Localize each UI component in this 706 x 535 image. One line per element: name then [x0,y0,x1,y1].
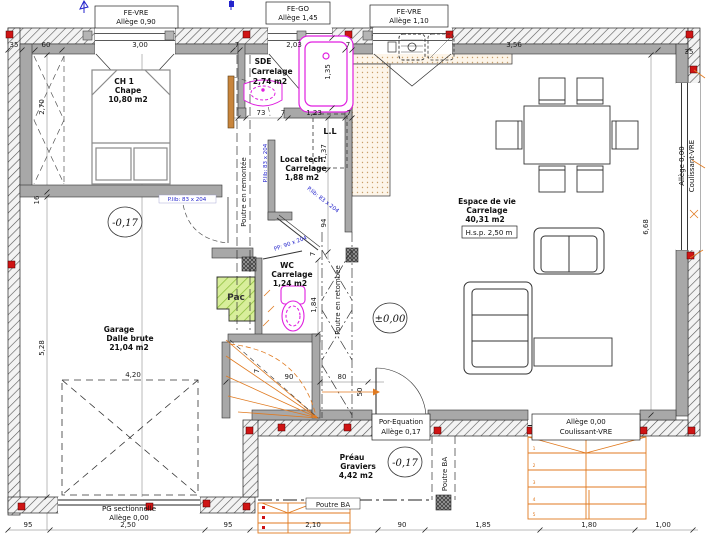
dim-wall16: 16 [33,195,41,204]
level-preau: -0,17 [392,458,418,469]
step-numbers: 1 2 3 4 5 [533,446,536,518]
label-coulissant-bottom-sill: Allège 0,00 [566,418,606,426]
level-living: ±0,00 [375,314,406,325]
dining-set [496,78,638,192]
dim-hall: 94 [320,218,328,227]
label-fego-name: FE-GO [287,5,310,13]
dim-sde-3: 7 [347,109,351,117]
dim-top-7: 35 [685,48,694,56]
beam-remontee-label: Poutre en remontée [240,157,248,227]
closet [34,56,64,184]
toilet [281,286,305,331]
dim-s7: 7 [253,369,261,373]
label-fevre2-sill: Allège 1,10 [389,17,429,25]
dim-bottom-7: 1,00 [655,521,671,529]
exterior-steps-right [528,437,646,519]
dim-garage-door: 4,20 [125,371,141,379]
step-2: 2 [533,463,536,469]
label-coulissant-right-name: Coulissant-VRE [688,140,696,192]
door-note-3: P.lib: 83 x 204 [306,186,341,215]
room-garage-floor: Dalle brute [106,334,153,343]
dim-top-4: 2,03 [286,41,302,49]
dim-corridor: 80 [338,373,347,381]
level-garage: -0,17 [112,218,138,229]
room-localtech-name: Local tech. [280,155,326,164]
label-pg-name: PG sectionnelle [102,505,156,513]
dim-top-3: 7 [235,41,239,49]
dim-bottom-4: 90 [398,521,407,529]
label-fevre2-name: FE-VRE [397,8,422,16]
dim-top-6: 3,56 [506,41,522,49]
kitchen-worktop [352,44,512,196]
dim-garage-h: 5,28 [38,340,46,356]
room-ch1-floor: Chape [115,86,141,95]
room-garage-area: 21,04 m2 [109,343,148,352]
label-pg-sill: Allège 0,00 [109,514,149,522]
door-note-1: P.lib: 83 x 204 [168,197,207,203]
room-living-name: Espace de vie [458,197,516,206]
dim-stair-d: 50 [356,388,364,397]
dim-sde-0: 73 [257,109,266,117]
room-sde-area: 2,74 m2 [253,77,287,86]
dim-sde-1: 7 [281,109,285,117]
room-living-hsp: H.s.p. 2,50 m [466,229,513,237]
window-labels: FE-VRE Allège 0,90 FE-GO Allège 1,45 FE-… [95,2,696,522]
label-porequation-name: Por-Equation [379,418,423,426]
dim-bottom-5: 1,85 [475,521,491,529]
room-preau-area: 4,42 m2 [339,471,373,480]
beam-ba-vertical-label: Poutre BA [441,457,449,491]
room-ch1-name: CH 1 [114,77,134,86]
heat-pump-label: Pac [227,293,245,303]
label-fevre1-sill: Allège 0,90 [116,18,156,26]
step-3: 3 [533,480,536,486]
label-coulissant-right-sill: Allège 0,00 [678,146,686,186]
dim-bottom-3: 2,10 [305,521,321,529]
dim-sde-2: 1,23 [306,109,322,117]
dim-bottom-1: 2,50 [120,521,136,529]
floor-plan-svg: 35 60 3,00 7 2,03 7 3,56 35 73 7 1,23 7 … [0,0,706,535]
dim-closet: 2,70 [38,99,46,115]
garage-reservation [62,380,198,495]
dim-bottom-6: 1,80 [581,521,597,529]
room-living-floor: Carrelage [466,206,507,215]
dim-entry: 1,84 [310,297,318,313]
dim-bottom-0: 95 [24,521,33,529]
sofa-large [464,282,532,374]
room-wc-name: WC [280,261,294,270]
door-note-2: P.lib: 83 x 204 [263,143,269,182]
washer-label: L.L [323,127,336,136]
step-4: 4 [533,497,536,503]
coffee-table [534,338,612,366]
room-ch1-area: 10,80 m2 [108,95,147,104]
room-sde-name: SDE [255,57,272,66]
label-porequation-sill: Allège 0,17 [381,428,421,436]
label-fego-sill: Allège 1,45 [278,14,318,22]
dim-stair-w: 90 [285,373,294,381]
door-swing [376,368,426,418]
label-coulissant-bottom-name: Coulissant-VRE [560,428,612,436]
room-preau-floor: Graviers [340,462,376,471]
dim-top-0: 35 [10,41,19,49]
dim-living-h: 6,68 [642,219,650,235]
room-living-area: 40,31 m2 [465,215,504,224]
dim-top-5: 7 [346,41,350,49]
room-preau-name: Préau [340,453,365,462]
dim-wall7: 7 [309,252,317,256]
door-leaf-sde [228,76,234,128]
dim-bath: 1,35 [324,64,332,80]
room-localtech-floor: Carrelage [285,164,326,173]
sofa-small [534,228,604,274]
room-sde-floor: Carrelage [251,67,292,76]
dim-top-2: 3,00 [132,41,148,49]
beam-ba-horizontal-label: Poutre BA [316,501,350,509]
beam-retombee-label: Poutre en retombée [334,265,342,335]
dim-bottom-2: 95 [224,521,233,529]
room-wc-area: 1,24 m2 [273,279,307,288]
floor-plan: 35 60 3,00 7 2,03 7 3,56 35 73 7 1,23 7 … [0,0,706,535]
dim-top-1: 60 [42,41,51,49]
step-5: 5 [533,512,536,518]
room-localtech-area: 1,88 m2 [285,173,319,182]
label-fevre1-name: FE-VRE [124,9,149,17]
room-wc-floor: Carrelage [271,270,312,279]
room-garage-name: Garage [104,325,134,334]
step-1: 1 [533,446,536,452]
door-note-4: PP: 90 x 204 [273,235,308,253]
